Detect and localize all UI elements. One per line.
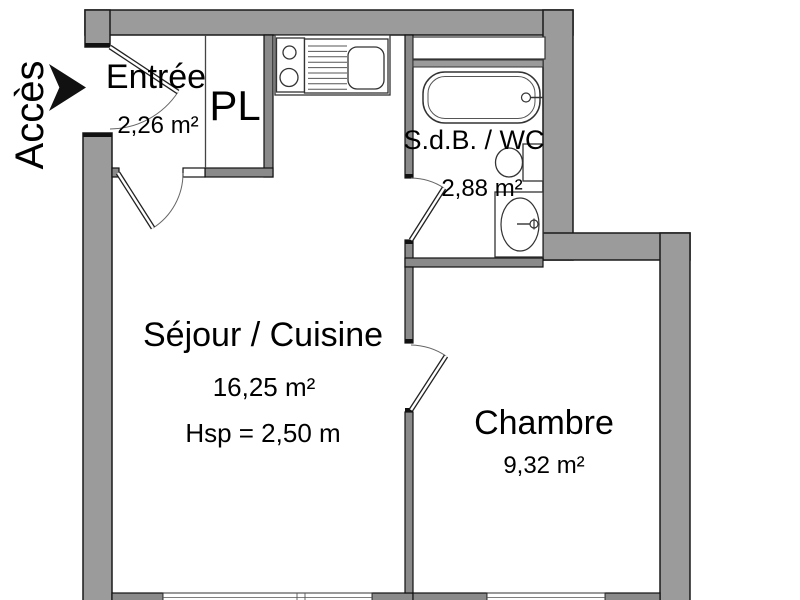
- wall-bath-bottom: [405, 258, 543, 267]
- bedroom-area-label: 9,32 m²: [464, 452, 624, 480]
- bathroom-area-label: 2,88 m²: [422, 175, 542, 203]
- window-living: [163, 593, 372, 600]
- living-ceiling-height-label: Hsp = 2,50 m: [163, 418, 363, 449]
- hall-door-swing: [118, 173, 183, 228]
- living-area-label: 16,25 m²: [184, 372, 344, 403]
- window-bedroom: [487, 593, 605, 600]
- stove-burner-large: [280, 69, 298, 87]
- closet-room-label: PL: [200, 82, 270, 130]
- wall-corner-block: [85, 10, 110, 47]
- wall-left: [83, 133, 112, 600]
- bedroom-room-label: Chambre: [444, 404, 644, 443]
- wall-top: [85, 10, 573, 35]
- kitchen-sink-symbol: [348, 47, 384, 89]
- wall-bath-left-upper: [405, 35, 413, 178]
- access-label: Accès: [9, 35, 51, 195]
- wall-entree-bottom: [205, 168, 273, 177]
- bathtub-symbol: [423, 72, 543, 123]
- door-jamb-stub: [183, 168, 205, 177]
- wall-partition-upper: [405, 267, 413, 343]
- stove-burner-small: [283, 46, 296, 59]
- kitchen-counter-symbol: [275, 35, 390, 95]
- wall-partition-lower: [405, 412, 413, 593]
- bedroom-door-swing: [411, 345, 446, 410]
- bathroom-room-label: S.d.B. / WC: [399, 125, 549, 156]
- bathroom-duct-symbol: [413, 37, 545, 67]
- floor-plan: Accès Entrée 2,26 m² PL S.d.B. / WC 2,88…: [0, 0, 800, 600]
- exterior-walls: [83, 10, 690, 600]
- living-room-label: Séjour / Cuisine: [143, 316, 383, 355]
- wall-right-lower: [660, 233, 690, 600]
